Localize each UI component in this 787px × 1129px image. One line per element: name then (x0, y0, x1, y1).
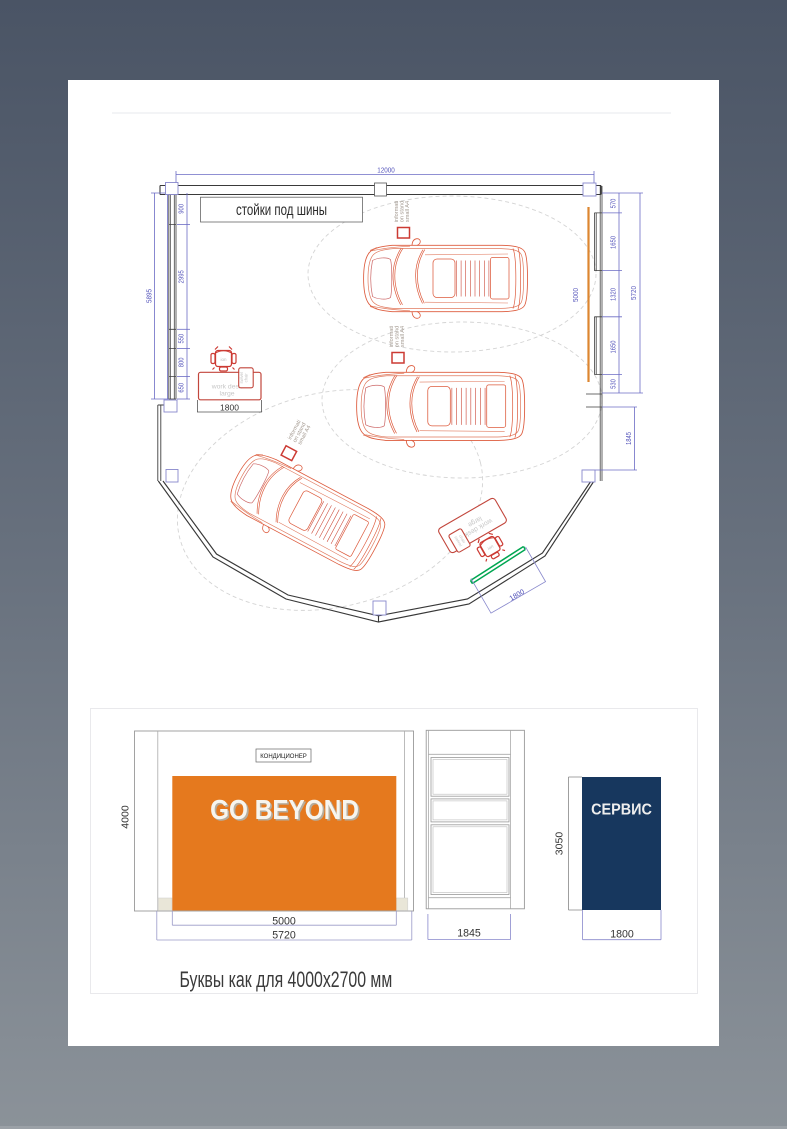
svg-text:КОНДИЦИОНЕР: КОНДИЦИОНЕР (260, 754, 307, 760)
svg-text:550: 550 (178, 333, 186, 343)
svg-text:1800: 1800 (610, 929, 634, 941)
svg-text:1800: 1800 (220, 403, 239, 413)
svg-text:1650: 1650 (610, 236, 618, 249)
svg-text:5000: 5000 (272, 915, 296, 927)
svg-text:стойки под шины: стойки под шины (236, 200, 327, 218)
svg-text:5895: 5895 (146, 289, 154, 303)
svg-text:work desk: work desk (211, 384, 243, 391)
svg-text:900: 900 (178, 204, 186, 214)
svg-text:650: 650 (178, 382, 186, 392)
svg-text:570: 570 (610, 198, 618, 208)
svg-text:1650: 1650 (610, 340, 618, 353)
svg-text:2995: 2995 (178, 270, 186, 283)
svg-text:ion: ion (220, 357, 227, 362)
svg-text:1845: 1845 (457, 928, 481, 940)
svg-text:СЕРВИС: СЕРВИС (591, 801, 652, 819)
svg-text:800: 800 (178, 357, 186, 367)
svg-text:Буквы как для 4000х2700 мм: Буквы как для 4000х2700 мм (180, 967, 393, 992)
svg-text:large: large (219, 391, 234, 398)
svg-text:4000: 4000 (120, 805, 132, 829)
svg-text:530: 530 (610, 379, 618, 389)
svg-text:1320: 1320 (610, 288, 618, 301)
svg-text:chair: chair (244, 373, 249, 383)
svg-text:12000: 12000 (377, 167, 395, 175)
svg-text:5000: 5000 (573, 288, 581, 302)
svg-text:1845: 1845 (626, 432, 634, 445)
svg-text:5720: 5720 (272, 930, 296, 942)
svg-text:5720: 5720 (631, 286, 639, 300)
svg-text:3050: 3050 (554, 832, 566, 856)
svg-text:GO BEYOND: GO BEYOND (210, 793, 359, 825)
svg-text:small A4: small A4 (405, 201, 411, 222)
svg-text:small A4: small A4 (400, 326, 406, 347)
